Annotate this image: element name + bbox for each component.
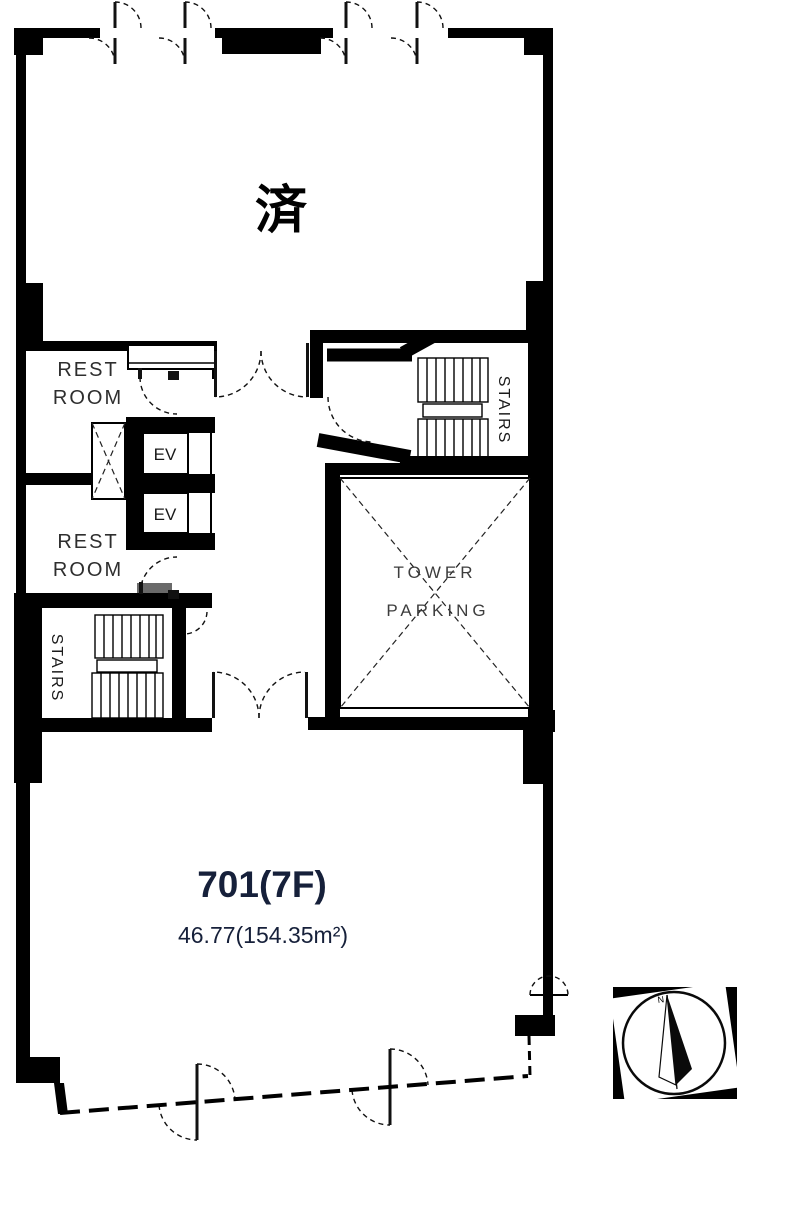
stairs-right-label: STAIRS [495,376,512,445]
stairs-left-treads [92,615,163,718]
tower-parking-label-2: PARKING [386,601,489,620]
restroom-upper-door [138,368,179,414]
window-wall [60,1036,530,1113]
floor-plan-page: N 済 REST ROOM REST ROOM EV EV STAIRS STA… [0,0,800,1205]
elevator-upper-label: EV [154,445,177,464]
corridor-double-door-lower [212,672,308,718]
floor-plan-drawing: N 済 REST ROOM REST ROOM EV EV STAIRS STA… [0,0,800,1205]
elevator-lower-label: EV [154,505,177,524]
stairs-left-door [185,612,207,634]
restroom-lower-label-1: REST [57,531,118,553]
parking-platform [340,478,530,708]
stairs-left-label: STAIRS [48,634,65,703]
stairs-right-door [328,397,373,442]
entrance-door-top-right [320,2,443,64]
compass-north-label: N [657,994,665,1005]
compass: N [610,982,740,1103]
corridor-double-door-upper [214,343,309,397]
restroom-lower-label-2: ROOM [53,559,123,581]
restroom-counter [128,345,215,369]
stairs-right-treads [418,358,488,462]
tower-parking-label-1: TOWER [394,563,477,582]
restroom-upper-label-1: REST [57,359,118,381]
restroom-upper-label-2: ROOM [53,387,123,409]
status-label: 済 [255,182,308,240]
labels: 済 REST ROOM REST ROOM EV EV STAIRS STAIR… [48,182,512,948]
pipe-shaft [92,423,125,499]
unit-number-label: 701(7F) [197,864,327,905]
fixtures [92,345,530,708]
entrance-door-top-left [89,2,211,64]
unit-area-label: 46.77(154.35m²) [178,922,348,948]
